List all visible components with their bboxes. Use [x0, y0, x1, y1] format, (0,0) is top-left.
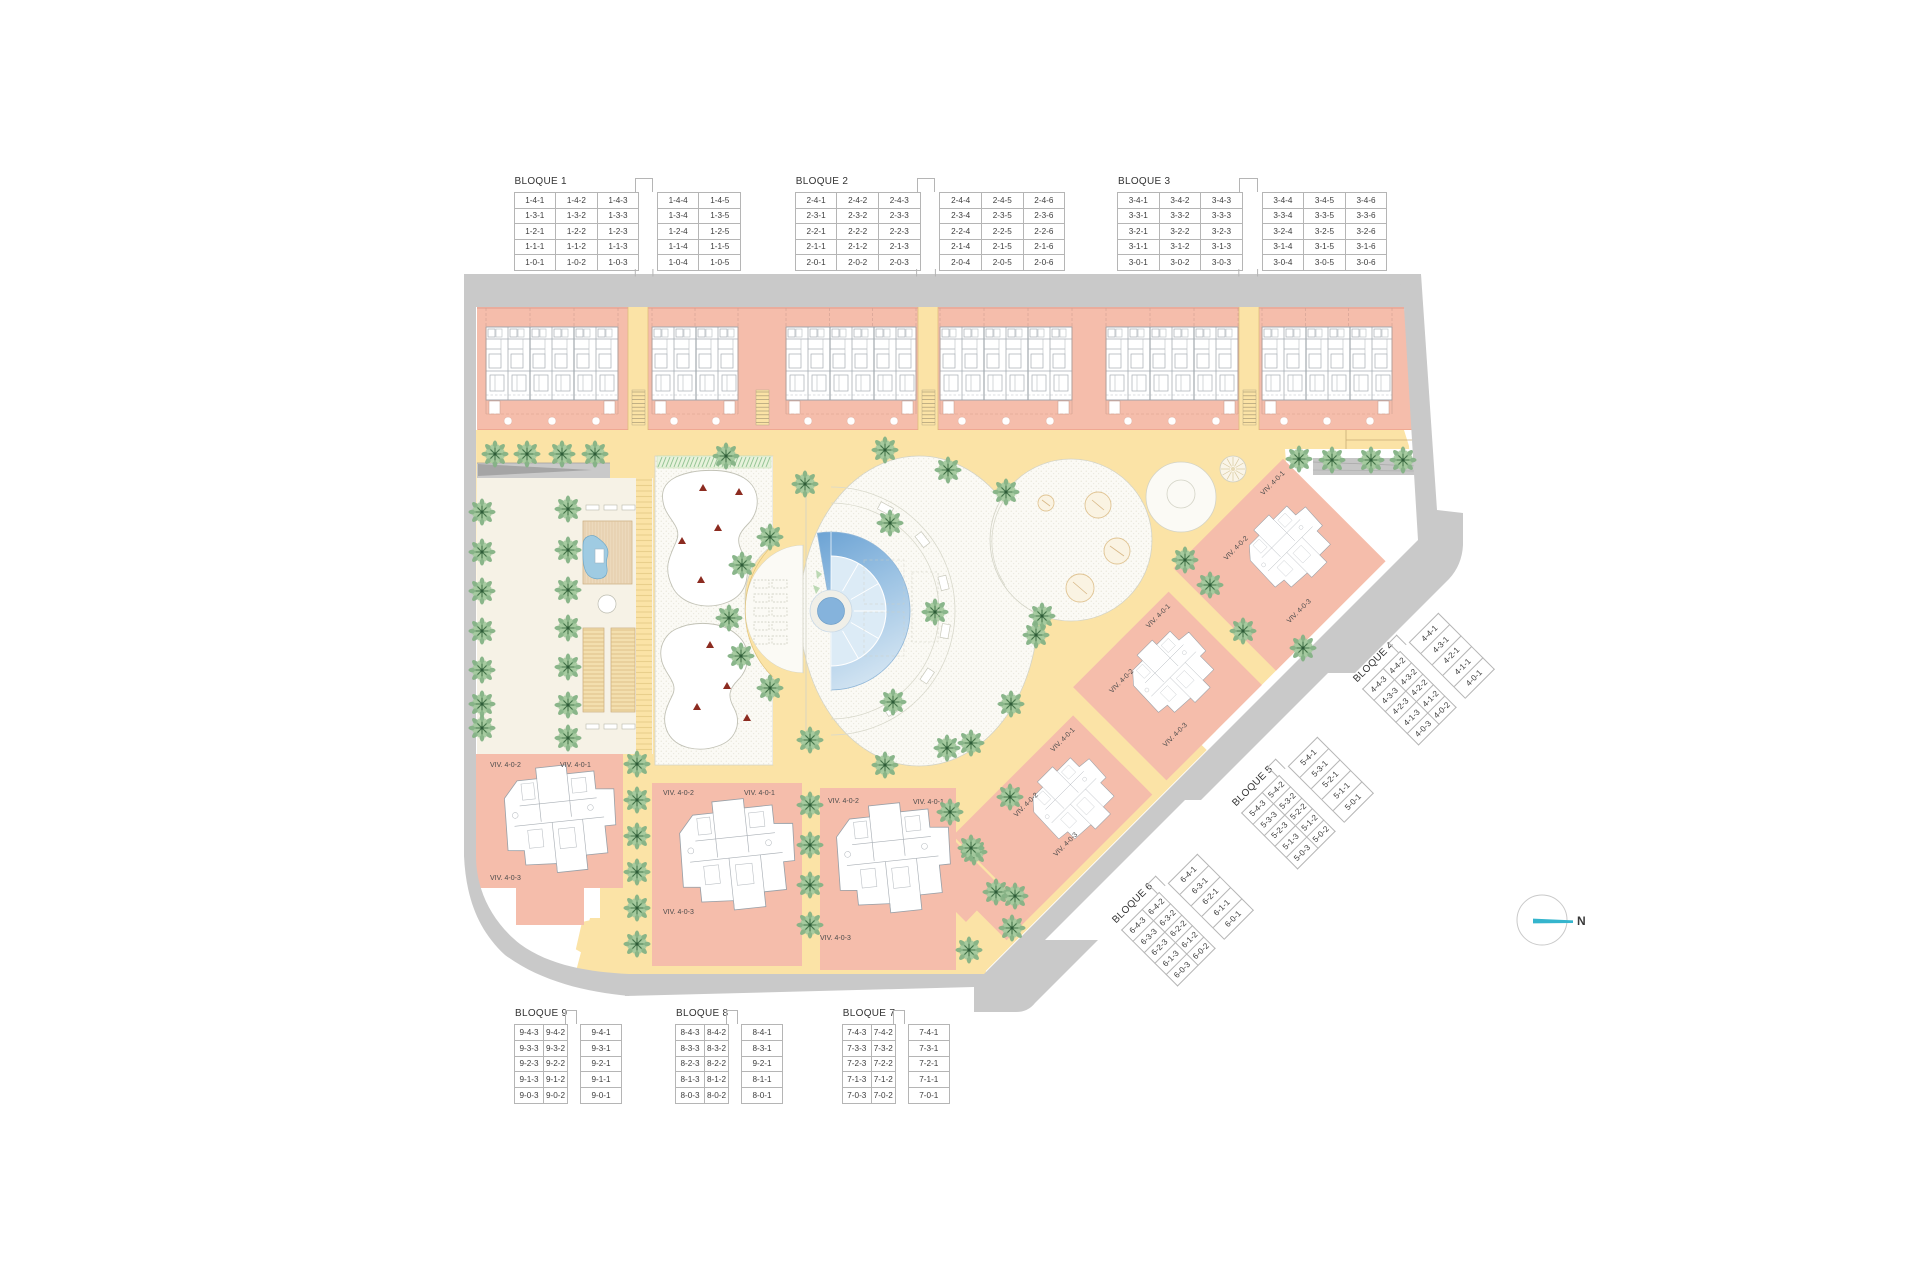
svg-text:VIV. 4-0-1: VIV. 4-0-1	[744, 790, 775, 797]
svg-text:VIV. 4-0-1: VIV. 4-0-1	[560, 762, 591, 769]
svg-text:VIV. 4-0-2: VIV. 4-0-2	[490, 762, 521, 769]
svg-text:N: N	[1577, 914, 1586, 928]
svg-text:VIV. 4-0-1: VIV. 4-0-1	[913, 799, 944, 806]
svg-text:VIV. 4-0-3: VIV. 4-0-3	[663, 909, 694, 916]
svg-text:VIV. 4-0-2: VIV. 4-0-2	[828, 798, 859, 805]
svg-text:VIV. 4-0-3: VIV. 4-0-3	[820, 935, 851, 942]
svg-text:VIV. 4-0-2: VIV. 4-0-2	[663, 790, 694, 797]
svg-text:VIV. 4-0-3: VIV. 4-0-3	[490, 875, 521, 882]
